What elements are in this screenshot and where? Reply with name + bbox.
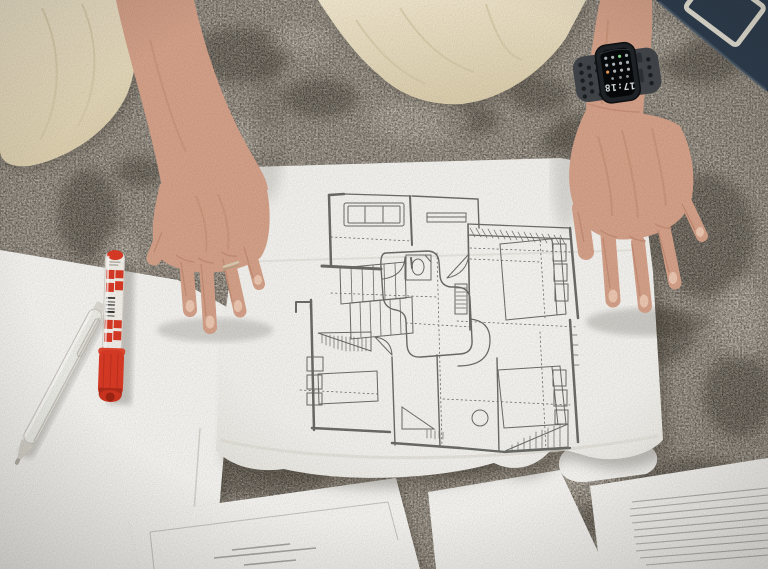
vignette <box>0 0 768 569</box>
photo-stage: 17:18 <box>0 0 768 569</box>
